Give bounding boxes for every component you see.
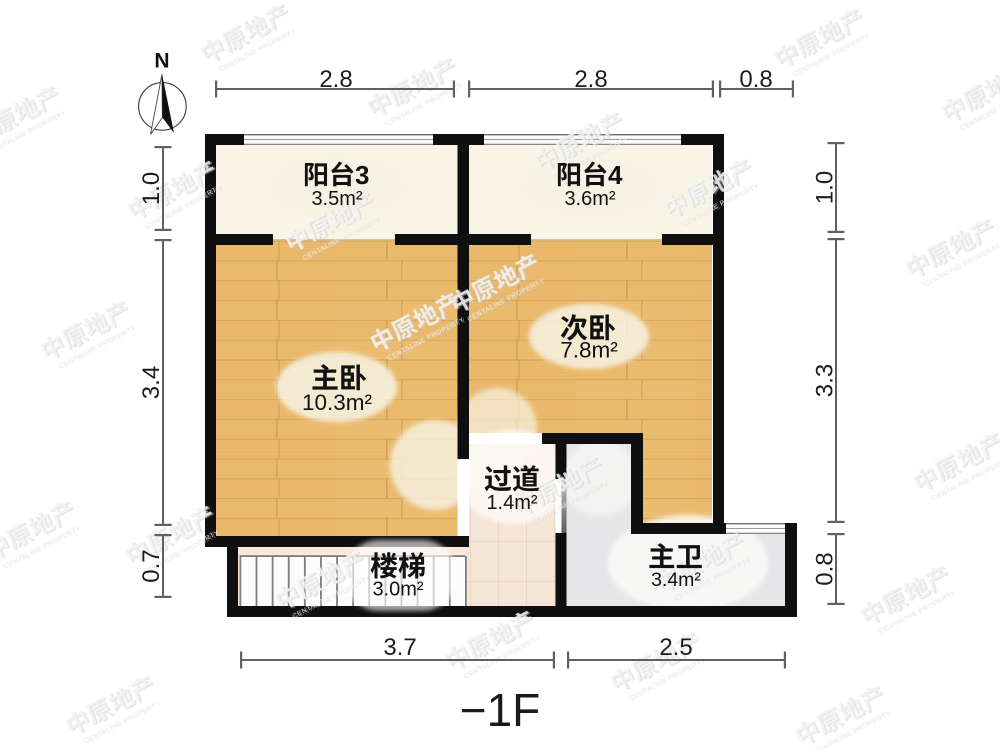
svg-text:1.0: 1.0 — [138, 172, 165, 205]
svg-text:N: N — [154, 50, 169, 73]
svg-text:10.3m²: 10.3m² — [302, 390, 373, 415]
svg-text:1.4m²: 1.4m² — [486, 492, 537, 514]
svg-text:2.8: 2.8 — [574, 66, 607, 93]
svg-text:3.4: 3.4 — [138, 366, 165, 399]
svg-text:3.5m²: 3.5m² — [311, 188, 362, 210]
svg-text:1.0: 1.0 — [812, 171, 839, 204]
svg-text:3.7: 3.7 — [383, 634, 416, 661]
svg-text:0.8: 0.8 — [812, 552, 839, 585]
svg-text:4: 4 — [608, 160, 623, 190]
svg-text:3.4m²: 3.4m² — [651, 569, 701, 591]
svg-text:2.5: 2.5 — [659, 634, 692, 661]
svg-text:3: 3 — [355, 160, 369, 190]
svg-text:0.8: 0.8 — [739, 66, 772, 93]
svg-text:3.6m²: 3.6m² — [564, 188, 615, 210]
svg-text:0.7: 0.7 — [138, 549, 165, 582]
svg-text:3.3: 3.3 — [812, 364, 839, 397]
svg-text:3.0m²: 3.0m² — [372, 579, 423, 601]
svg-text:2.8: 2.8 — [319, 66, 352, 93]
svg-text:7.8m²: 7.8m² — [560, 338, 618, 363]
svg-text:−1F: −1F — [460, 684, 541, 736]
